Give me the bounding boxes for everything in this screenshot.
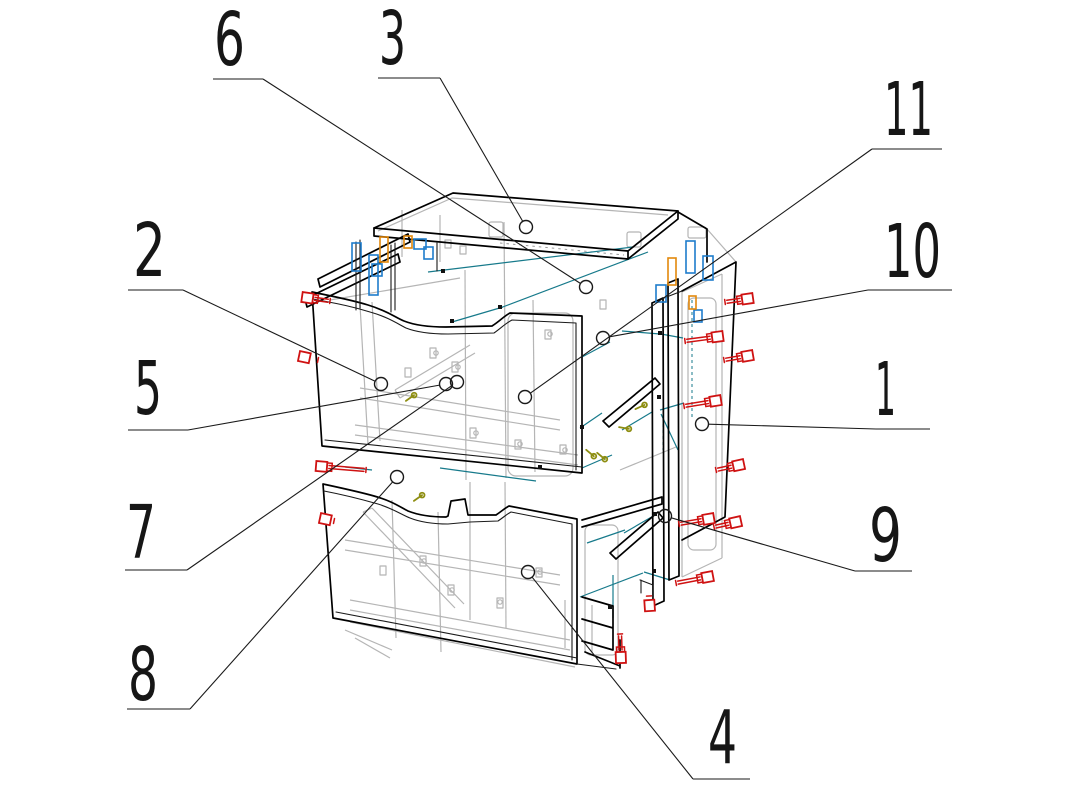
- cam-fastener-dot: [657, 395, 661, 399]
- screw-tip: [330, 299, 331, 304]
- cam-fastener-dot: [658, 331, 662, 335]
- cabinet-drawing: [298, 193, 754, 669]
- panel-outline: [582, 597, 620, 668]
- callout-number: 10: [884, 209, 941, 295]
- balloon-circle: [580, 281, 593, 294]
- screw-head: [319, 513, 332, 525]
- leader-line: [708, 424, 876, 429]
- cam-fastener-dot: [580, 425, 584, 429]
- fitting: [380, 566, 386, 575]
- edge-detail-line: [313, 299, 576, 470]
- hidden-structure-line: [620, 447, 676, 470]
- screw-head: [711, 331, 723, 342]
- screw-tip: [333, 519, 334, 524]
- callout-4: 4: [522, 566, 751, 782]
- balloon-circle: [519, 391, 532, 404]
- hidden-structure-line: [504, 222, 506, 478]
- screw-tip: [679, 522, 680, 527]
- hidden-panel: [627, 232, 641, 247]
- leader-line: [183, 290, 375, 381]
- fitting: [445, 240, 451, 248]
- screw-shaft: [727, 301, 740, 303]
- leader-line: [530, 149, 872, 393]
- exploded-assembly-diagram: 1234567891011: [0, 0, 1087, 792]
- screw-shaft: [727, 298, 740, 300]
- screw-head: [732, 459, 745, 471]
- screw-head: [741, 350, 754, 362]
- technical-drawing-page: 1234567891011: [0, 0, 1087, 792]
- olive-screw-shaft: [597, 453, 605, 459]
- callout-7: 7: [125, 376, 464, 577]
- assembly-guide-line: [587, 530, 625, 543]
- screw-head: [298, 351, 311, 363]
- screw-tip: [715, 468, 716, 473]
- edge-detail-line: [325, 440, 582, 467]
- screw-head: [741, 293, 753, 304]
- leader-line: [609, 290, 868, 337]
- callout-number: 9: [869, 493, 902, 579]
- screw-head: [316, 461, 328, 472]
- balloon-circle: [696, 418, 709, 431]
- screw-head: [702, 513, 715, 525]
- olive-screw: [619, 426, 631, 431]
- olive-screw: [414, 493, 425, 501]
- leader-line: [190, 482, 393, 709]
- screw-tip: [684, 404, 685, 409]
- edge-detail-line: [356, 240, 360, 310]
- fitting: [470, 428, 476, 438]
- cam-fastener-dot: [441, 269, 445, 273]
- screw-tip: [724, 358, 725, 363]
- hinge-clip-blue: [686, 241, 695, 273]
- screw-fastener: [319, 513, 335, 526]
- fitting: [430, 348, 436, 358]
- screw-fastener: [723, 350, 754, 365]
- callout-number: 2: [133, 208, 166, 294]
- balloon-circle: [520, 221, 533, 234]
- screw-head: [709, 395, 721, 407]
- fitting: [405, 368, 411, 377]
- cam-fastener-dot: [608, 605, 612, 609]
- screw-head: [301, 292, 313, 303]
- hidden-structure-line: [565, 600, 592, 652]
- panel-outline: [628, 211, 678, 259]
- callout-10: 10: [597, 209, 953, 345]
- edge-detail-line: [391, 243, 395, 312]
- panel-outline: [374, 193, 678, 251]
- panel-outline: [312, 292, 582, 473]
- hidden-structure-line: [533, 300, 535, 472]
- screw-head: [729, 516, 742, 528]
- callout-number: 3: [379, 0, 406, 82]
- callout-number: 4: [708, 695, 737, 781]
- dowel-hole: [498, 600, 502, 604]
- screw-fastener: [715, 459, 745, 475]
- hidden-panel: [688, 227, 706, 238]
- hidden-structure-line: [355, 638, 390, 658]
- hinge-clip-orange: [380, 237, 388, 262]
- hidden-structure-line: [378, 198, 668, 231]
- cam-fastener-dot: [653, 512, 657, 516]
- hidden-structure-line: [465, 270, 466, 480]
- screw-tip: [317, 358, 318, 363]
- assembly-guide-line: [661, 334, 683, 338]
- screw-tip: [725, 300, 726, 305]
- panel-outline: [652, 298, 664, 606]
- cam-fastener-dot: [538, 465, 542, 469]
- assembly-guide-line: [644, 572, 670, 580]
- cam-fastener-dot: [498, 305, 502, 309]
- callout-number: 6: [214, 0, 245, 83]
- screw-tip: [713, 525, 714, 530]
- panel-outline: [678, 212, 707, 262]
- hidden-structure-line: [395, 345, 475, 398]
- screw-head: [616, 652, 626, 663]
- assembly-guide-line: [440, 468, 536, 481]
- screw-fastener: [675, 571, 714, 588]
- fitting: [460, 246, 466, 254]
- callout-number: 5: [134, 346, 162, 432]
- panel-outline: [582, 497, 662, 527]
- assembly-guide-line: [452, 307, 503, 322]
- balloon-circle: [391, 471, 404, 484]
- hidden-structure-line: [505, 482, 506, 628]
- screw-fastener: [724, 293, 753, 307]
- leader-line: [263, 79, 581, 283]
- edge-detail-line: [577, 664, 616, 669]
- screw-head: [701, 571, 714, 583]
- balloon-circle: [522, 566, 535, 579]
- screw-head: [644, 600, 655, 612]
- callout-number: 1: [875, 347, 896, 433]
- screw-tip: [685, 339, 686, 344]
- olive-screw: [586, 450, 596, 459]
- screw-tip: [676, 581, 677, 586]
- callout-number: 11: [884, 67, 933, 153]
- hidden-structure-line: [360, 302, 380, 444]
- callout-8: 8: [127, 471, 404, 719]
- callout-number: 7: [126, 490, 156, 576]
- callout-9: 9: [659, 493, 913, 579]
- fitting: [600, 300, 606, 309]
- part-callouts: 1234567891011: [125, 0, 952, 781]
- olive-screw-shaft: [586, 450, 594, 456]
- callout-number: 8: [128, 632, 158, 718]
- hidden-structure-line: [345, 540, 570, 650]
- assembly-guide-line: [580, 573, 643, 597]
- cam-fastener-dot: [450, 319, 454, 323]
- leader-line: [188, 385, 440, 430]
- cam-fastener-dot: [652, 569, 656, 573]
- screw-fastener: [684, 331, 723, 346]
- hidden-structure-line: [363, 508, 464, 608]
- screw-fastener: [713, 516, 742, 532]
- leader-line: [671, 518, 855, 571]
